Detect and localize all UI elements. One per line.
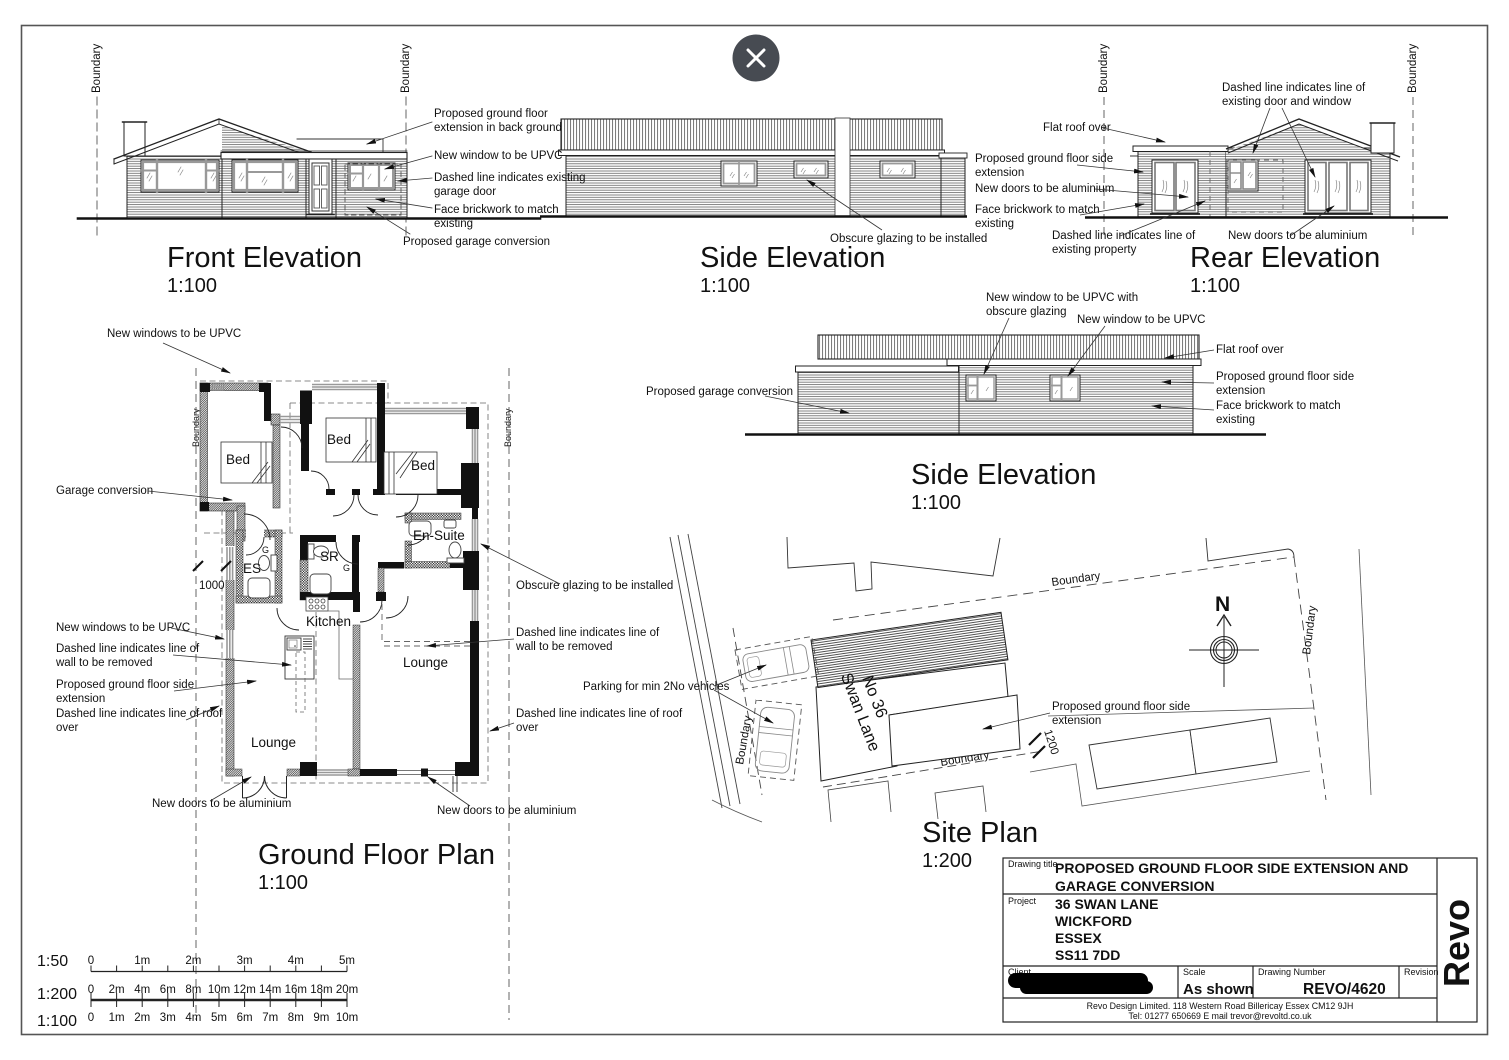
svg-text:3m: 3m	[237, 955, 253, 967]
svg-text:extension: extension	[1216, 385, 1265, 397]
svg-text:6m: 6m	[160, 984, 176, 996]
svg-text:existing property: existing property	[1052, 244, 1137, 256]
svg-text:New doors to be aluminium: New doors to be aluminium	[152, 798, 291, 810]
svg-text:Rear Elevation: Rear Elevation	[1190, 242, 1380, 274]
svg-text:4m: 4m	[134, 984, 150, 996]
svg-text:16m: 16m	[285, 984, 307, 996]
svg-text:New window to be UPVC: New window to be UPVC	[1077, 314, 1205, 326]
svg-text:2m: 2m	[134, 1012, 150, 1024]
svg-text:ESSEX: ESSEX	[1055, 930, 1102, 946]
svg-text:existing: existing	[1216, 414, 1255, 426]
svg-text:Dashed line indicates line of: Dashed line indicates line of	[1222, 82, 1366, 94]
svg-text:1:100: 1:100	[1190, 275, 1240, 297]
svg-text:wall to be removed: wall to be removed	[515, 641, 613, 653]
svg-text:existing door and window: existing door and window	[1222, 96, 1352, 108]
svg-text:extension in back ground: extension in back ground	[434, 122, 562, 134]
svg-text:8m: 8m	[185, 984, 201, 996]
svg-text:Lounge: Lounge	[403, 655, 448, 670]
svg-text:existing: existing	[434, 218, 473, 230]
svg-text:14m: 14m	[259, 984, 281, 996]
svg-text:1:100: 1:100	[37, 1013, 77, 1030]
svg-text:1000: 1000	[199, 580, 225, 592]
svg-text:Face brickwork to match: Face brickwork to match	[975, 204, 1100, 216]
svg-text:Scale: Scale	[1183, 967, 1206, 977]
svg-text:Drawing Number: Drawing Number	[1258, 967, 1326, 977]
svg-text:Boundary: Boundary	[91, 44, 103, 93]
svg-text:over: over	[516, 722, 539, 734]
svg-text:1m: 1m	[134, 955, 150, 967]
svg-text:Face brickwork to match: Face brickwork to match	[434, 204, 559, 216]
svg-text:New doors to be aluminium: New doors to be aluminium	[437, 805, 576, 817]
svg-text:1m: 1m	[109, 1012, 125, 1024]
svg-text:Dashed line indicates existing: Dashed line indicates existing	[434, 172, 586, 184]
svg-text:As shown: As shown	[1183, 981, 1254, 998]
svg-text:9m: 9m	[313, 1012, 329, 1024]
svg-text:Obscure glazing to be installe: Obscure glazing to be installed	[516, 580, 673, 592]
svg-text:1:100: 1:100	[911, 492, 961, 514]
svg-text:ES: ES	[243, 561, 261, 576]
svg-text:Dashed line indicates line of: Dashed line indicates line of	[1052, 230, 1196, 242]
svg-text:36 SWAN LANE: 36 SWAN LANE	[1055, 896, 1158, 912]
svg-text:Boundary: Boundary	[400, 44, 412, 93]
svg-text:Boundary: Boundary	[1098, 44, 1110, 93]
svg-text:New windows to be UPVC: New windows to be UPVC	[56, 622, 190, 634]
svg-text:4m: 4m	[288, 955, 304, 967]
svg-text:WICKFORD: WICKFORD	[1055, 913, 1132, 929]
svg-text:G: G	[343, 563, 350, 573]
svg-text:3m: 3m	[160, 1012, 176, 1024]
svg-text:1:100: 1:100	[258, 872, 308, 894]
svg-text:Proposed ground floor side: Proposed ground floor side	[975, 153, 1113, 165]
svg-text:Parking for min 2No vehicles: Parking for min 2No vehicles	[583, 681, 730, 693]
svg-text:0: 0	[88, 984, 94, 996]
svg-text:extension: extension	[975, 167, 1024, 179]
svg-text:REVO/4620: REVO/4620	[1303, 981, 1386, 998]
svg-text:Project: Project	[1008, 896, 1037, 906]
svg-text:Side Elevation: Side Elevation	[700, 242, 885, 274]
svg-text:18m: 18m	[310, 984, 332, 996]
svg-text:Kitchen: Kitchen	[306, 614, 351, 629]
svg-text:Proposed ground floor side: Proposed ground floor side	[1052, 701, 1190, 713]
svg-text:Boundary: Boundary	[1407, 44, 1419, 93]
svg-text:Lounge: Lounge	[251, 735, 296, 750]
svg-text:Proposed ground floor: Proposed ground floor	[434, 108, 548, 120]
svg-text:Bed: Bed	[226, 452, 250, 467]
svg-text:Obscure glazing to be installe: Obscure glazing to be installed	[830, 233, 987, 245]
svg-text:20m: 20m	[336, 984, 358, 996]
svg-text:New windows to be UPVC: New windows to be UPVC	[107, 328, 241, 340]
svg-text:SR: SR	[320, 549, 339, 564]
svg-text:1:100: 1:100	[167, 275, 217, 297]
svg-text:En-Suite: En-Suite	[413, 528, 465, 543]
svg-text:0: 0	[88, 1012, 94, 1024]
svg-text:2m: 2m	[185, 955, 201, 967]
svg-text:GARAGE CONVERSION: GARAGE CONVERSION	[1055, 878, 1214, 894]
svg-text:8m: 8m	[288, 1012, 304, 1024]
svg-text:Revision: Revision	[1404, 967, 1439, 977]
svg-text:5m: 5m	[339, 955, 355, 967]
svg-text:PROPOSED GROUND FLOOR SIDE EXT: PROPOSED GROUND FLOOR SIDE EXTENSION AND	[1055, 860, 1408, 876]
svg-text:extension: extension	[1052, 715, 1101, 727]
svg-text:Proposed garage conversion: Proposed garage conversion	[403, 236, 550, 248]
svg-text:extension: extension	[56, 693, 105, 705]
svg-text:Proposed ground floor side: Proposed ground floor side	[56, 679, 194, 691]
svg-text:garage door: garage door	[434, 186, 496, 198]
svg-text:6m: 6m	[237, 1012, 253, 1024]
svg-text:10m: 10m	[336, 1012, 358, 1024]
svg-text:Front Elevation: Front Elevation	[167, 242, 362, 274]
svg-text:Flat roof over: Flat roof over	[1216, 344, 1284, 356]
svg-text:1:200: 1:200	[922, 850, 972, 872]
svg-text:Face brickwork to match: Face brickwork to match	[1216, 400, 1341, 412]
svg-text:Tel: 01277 650669 E mail trevo: Tel: 01277 650669 E mail trevor@revoltd.…	[1128, 1011, 1312, 1021]
svg-text:1:50: 1:50	[37, 953, 68, 970]
svg-text:0: 0	[88, 955, 94, 967]
svg-text:existing: existing	[975, 218, 1014, 230]
svg-text:4m: 4m	[185, 1012, 201, 1024]
svg-text:7m: 7m	[262, 1012, 278, 1024]
svg-text:1:200: 1:200	[37, 986, 77, 1003]
svg-text:Drawing title: Drawing title	[1008, 859, 1058, 869]
svg-text:12m: 12m	[233, 984, 255, 996]
svg-text:New doors to be aluminium: New doors to be aluminium	[975, 183, 1114, 195]
svg-text:Flat roof over: Flat roof over	[1043, 122, 1111, 134]
svg-text:Revo: Revo	[1436, 899, 1477, 987]
svg-text:Dashed line indicates line of: Dashed line indicates line of	[516, 627, 660, 639]
svg-text:Site Plan: Site Plan	[922, 817, 1038, 849]
svg-text:1:100: 1:100	[700, 275, 750, 297]
svg-text:Proposed garage conversion: Proposed garage conversion	[646, 386, 793, 398]
svg-text:Proposed ground floor side: Proposed ground floor side	[1216, 371, 1354, 383]
svg-text:2m: 2m	[109, 984, 125, 996]
svg-text:Boundary: Boundary	[503, 408, 513, 447]
svg-text:Garage conversion: Garage conversion	[56, 485, 153, 497]
svg-text:SS11 7DD: SS11 7DD	[1055, 947, 1120, 963]
svg-text:Bed: Bed	[327, 432, 351, 447]
svg-text:10m: 10m	[208, 984, 230, 996]
svg-text:obscure glazing: obscure glazing	[986, 306, 1067, 318]
svg-text:Bed: Bed	[411, 458, 435, 473]
svg-text:Dashed line indicates line of: Dashed line indicates line of roof	[56, 708, 223, 720]
svg-text:5m: 5m	[211, 1012, 227, 1024]
svg-text:over: over	[56, 722, 79, 734]
svg-text:New window to be UPVC with: New window to be UPVC with	[986, 292, 1138, 304]
svg-text:wall to be removed: wall to be removed	[55, 657, 153, 669]
svg-text:New window to be UPVC: New window to be UPVC	[434, 150, 562, 162]
svg-text:Side Elevation: Side Elevation	[911, 459, 1096, 491]
svg-text:Dashed line indicates line of: Dashed line indicates line of	[56, 643, 200, 655]
svg-text:Ground Floor Plan: Ground Floor Plan	[258, 839, 495, 871]
svg-text:Revo Design Limited. 118 Weste: Revo Design Limited. 118 Western Road Bi…	[1087, 1001, 1354, 1011]
svg-text:N: N	[1215, 593, 1230, 616]
svg-text:Dashed line indicates line of: Dashed line indicates line of roof	[516, 708, 683, 720]
svg-text:G: G	[262, 545, 269, 555]
svg-text:New doors to be aluminium: New doors to be aluminium	[1228, 230, 1367, 242]
